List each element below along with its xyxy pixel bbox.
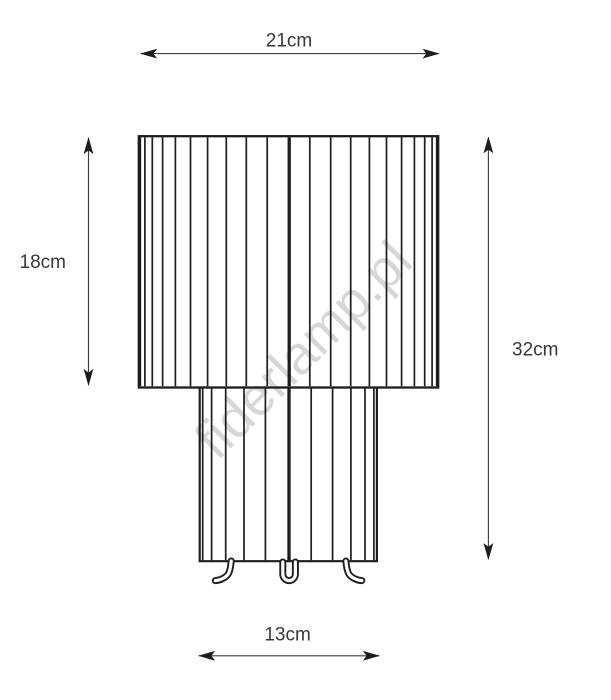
svg-text:13cm: 13cm — [264, 625, 310, 646]
svg-text:21cm: 21cm — [266, 31, 312, 52]
svg-text:18cm: 18cm — [20, 252, 66, 273]
svg-text:32cm: 32cm — [512, 340, 558, 361]
